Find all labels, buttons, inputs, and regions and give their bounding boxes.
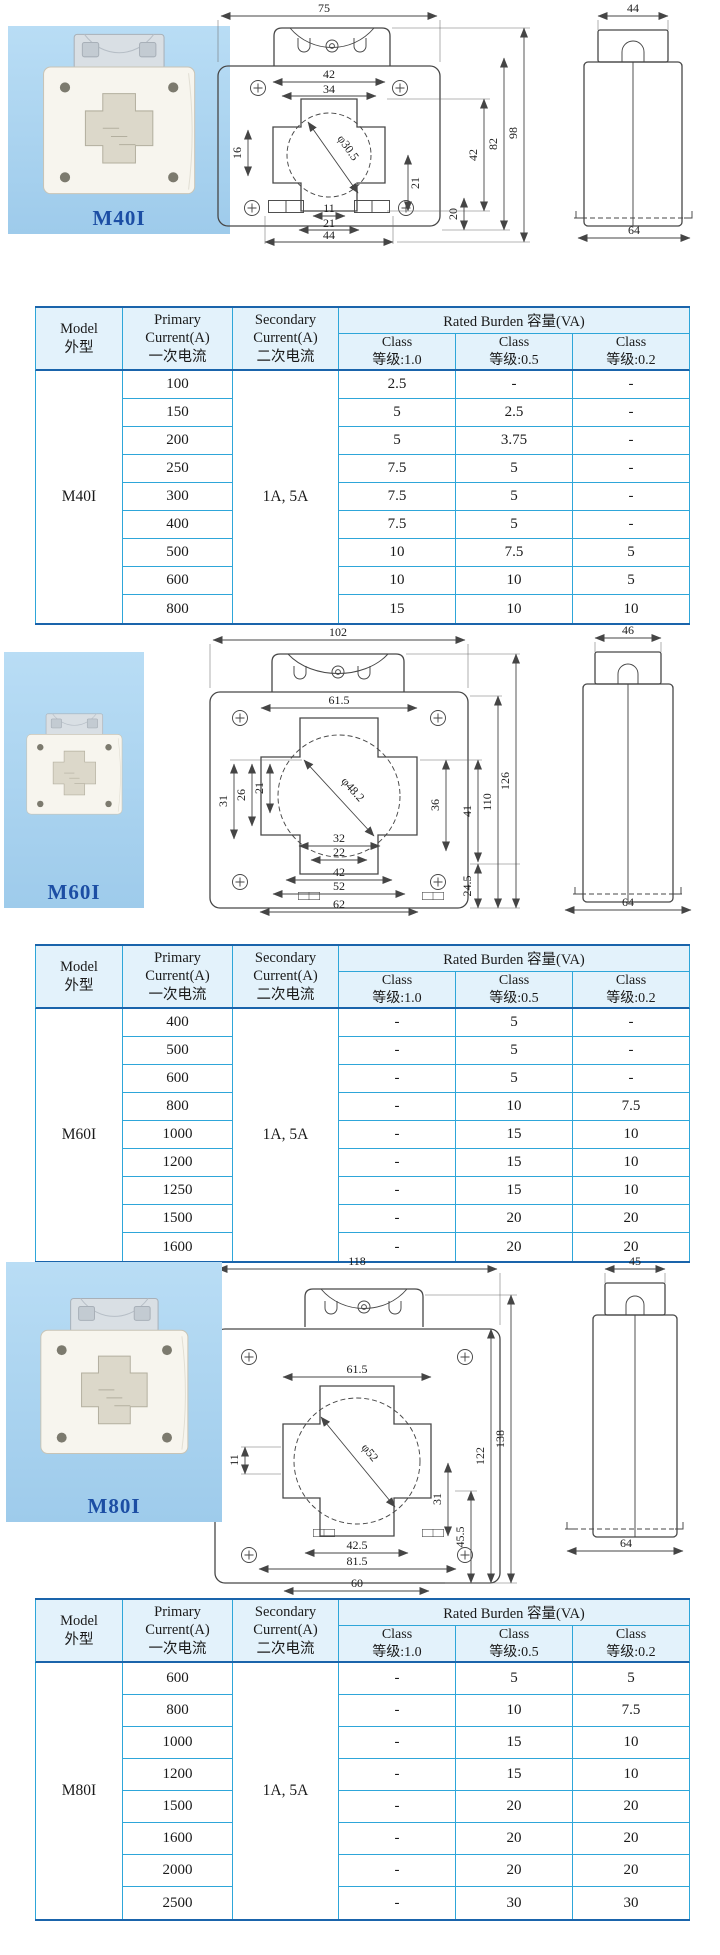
class02-cell: 20 <box>573 1823 689 1855</box>
primary-current-cell: 1250 <box>123 1177 232 1205</box>
dim-mid-a: 32 <box>333 831 345 845</box>
dim-right-a: 45.5 <box>453 1527 467 1548</box>
class05-cell: 5 <box>456 455 572 483</box>
primary-current-cell: 800 <box>123 1695 232 1727</box>
class10-cell: - <box>339 1121 455 1149</box>
class-label: Class <box>382 972 412 990</box>
header-primary-l3: 一次电流 <box>149 986 207 1004</box>
class05-cell: 5 <box>456 511 572 539</box>
class10-cell: - <box>339 1759 455 1791</box>
col-header-class05: Class 等级:0.5 <box>455 334 572 369</box>
class02-cell: 5 <box>573 1663 689 1695</box>
class-label: Class <box>616 334 646 352</box>
class-10-label: 等级:1.0 <box>372 990 421 1008</box>
burden-title: Rated Burden 容量(VA) <box>339 308 689 334</box>
header-primary-l2: Current(A) <box>145 329 209 347</box>
header-primary-l1: Primary <box>154 311 201 329</box>
class10-cell: - <box>339 1093 455 1121</box>
class02-cell: - <box>573 455 689 483</box>
class05-cell: 5 <box>456 483 572 511</box>
dim-window-outer: 61.5 <box>347 1362 368 1376</box>
header-secondary-l1: Secondary <box>255 949 316 967</box>
m60i-front-dimensions: 102 61.5 21 26 31 φ48.2 32 22 42 52 62 3… <box>210 625 520 912</box>
class02-cell: 20 <box>573 1205 689 1233</box>
class-label: Class <box>382 1626 412 1644</box>
header-model-en: Model <box>60 1612 98 1630</box>
primary-current-cell: 200 <box>123 427 232 455</box>
col-header-secondary: Secondary Current(A) 二次电流 <box>232 308 338 369</box>
dim-mid-b: 22 <box>333 845 345 859</box>
dim-side-bottom: 64 <box>622 895 634 909</box>
dim-window-outer: 42 <box>323 67 335 81</box>
class02-cell: 10 <box>573 1149 689 1177</box>
m80i-front-dimensions: 118 61.5 φ52 11 31 42.5 81.5 60 45.5 122… <box>215 1254 517 1591</box>
dim-bore-diameter: φ30.5 <box>335 132 362 163</box>
class-02-label: 等级:0.2 <box>606 352 655 370</box>
dim-left-a: 31 <box>216 795 230 807</box>
dim-window-outer: 61.5 <box>329 693 350 707</box>
class10-column: --------- <box>338 1009 455 1261</box>
class05-cell: 15 <box>456 1759 572 1791</box>
m40i-product-photo <box>17 26 221 202</box>
table-body: M60I 40050060080010001200125015001600 1A… <box>35 1009 690 1261</box>
dim-side-bottom: 64 <box>628 223 640 237</box>
m80i-photo-card: M80I <box>6 1262 222 1522</box>
m80i-side-drawing: 45 64 <box>553 1251 698 1563</box>
table-header: Model 外型 Primary Current(A) 一次电流 Seconda… <box>35 308 690 371</box>
class10-cell: - <box>339 1177 455 1205</box>
class02-cell: 10 <box>573 1121 689 1149</box>
primary-current-cell: 1600 <box>123 1823 232 1855</box>
primary-current-cell: 2000 <box>123 1855 232 1887</box>
primary-current-cell: 250 <box>123 455 232 483</box>
dim-right-in: 31 <box>430 1493 444 1505</box>
class10-cell: - <box>339 1791 455 1823</box>
class05-cell: 20 <box>456 1791 572 1823</box>
class-label: Class <box>382 334 412 352</box>
class05-cell: 15 <box>456 1177 572 1205</box>
header-primary-l1: Primary <box>154 1603 201 1621</box>
col-header-class05: Class 等级:0.5 <box>455 1626 572 1661</box>
col-header-burden: Rated Burden 容量(VA) Class 等级:1.0 Class 等… <box>338 1600 689 1661</box>
class10-cell: - <box>339 1855 455 1887</box>
header-model-cn: 外型 <box>65 339 94 357</box>
class-label: Class <box>499 972 529 990</box>
dim-base-gap: 20 <box>446 208 460 220</box>
header-secondary-l3: 二次电流 <box>257 1640 315 1658</box>
m60i-product-photo <box>10 652 139 876</box>
col-header-class10: Class 等级:1.0 <box>339 334 455 369</box>
burden-title: Rated Burden 容量(VA) <box>339 946 689 972</box>
col-header-class10: Class 等级:1.0 <box>339 1626 455 1661</box>
class02-cell: - <box>573 427 689 455</box>
class05-cell: 10 <box>456 1093 572 1121</box>
header-secondary-l1: Secondary <box>255 1603 316 1621</box>
m60i-spec-table: Model 外型 Primary Current(A) 一次电流 Seconda… <box>35 944 690 1263</box>
dim-height-body: 82 <box>486 138 500 150</box>
dim-side-bottom: 64 <box>620 1536 632 1550</box>
class10-cell: 7.5 <box>339 483 455 511</box>
class02-cell: 7.5 <box>573 1093 689 1121</box>
dim-bot-c: 62 <box>333 897 345 911</box>
col-header-class10: Class 等级:1.0 <box>339 972 455 1007</box>
m80i-product-photo <box>15 1262 214 1490</box>
dim-bot-c: 60 <box>351 1576 363 1590</box>
class10-cell: - <box>339 1037 455 1065</box>
primary-current-cell: 400 <box>123 1009 232 1037</box>
m60i-photo-card: M60I <box>4 652 144 908</box>
primary-current-cell: 1500 <box>123 1205 232 1233</box>
class-10-label: 等级:1.0 <box>372 1644 421 1662</box>
m40i-photo-card: M40I <box>8 26 230 234</box>
class10-cell: - <box>339 1009 455 1037</box>
col-header-class02: Class 等级:0.2 <box>572 972 689 1007</box>
class10-cell: - <box>339 1823 455 1855</box>
header-model-en: Model <box>60 320 98 338</box>
m80i-photo-label: M80I <box>88 1490 141 1522</box>
dim-bot-b: 81.5 <box>347 1554 368 1568</box>
class05-cell: 30 <box>456 1887 572 1919</box>
col-header-primary: Primary Current(A) 一次电流 <box>122 1600 232 1661</box>
dim-left-b: 26 <box>234 789 248 801</box>
dim-right-inner: 21 <box>408 177 422 189</box>
col-header-class02: Class 等级:0.2 <box>572 1626 689 1661</box>
primary-current-column: 100150200250300400500600800 <box>122 371 232 623</box>
dim-window-inner: 34 <box>323 82 335 96</box>
class05-cell: 10 <box>456 1695 572 1727</box>
model-cell: M40I <box>36 371 122 623</box>
class05-column: -2.53.755557.51010 <box>455 371 572 623</box>
table-header: Model 外型 Primary Current(A) 一次电流 Seconda… <box>35 946 690 1009</box>
col-header-burden: Rated Burden 容量(VA) Class 等级:1.0 Class 等… <box>338 308 689 369</box>
class10-cell: - <box>339 1149 455 1177</box>
col-header-class02: Class 等级:0.2 <box>572 334 689 369</box>
burden-title: Rated Burden 容量(VA) <box>339 1600 689 1626</box>
m60i-photo-label: M60I <box>48 876 101 908</box>
header-primary-l3: 一次电流 <box>149 348 207 366</box>
header-model-en: Model <box>60 958 98 976</box>
m60i-front-drawing: 102 61.5 21 26 31 φ48.2 32 22 42 52 62 3… <box>200 624 530 916</box>
class02-cell: 20 <box>573 1791 689 1823</box>
dim-bore-diameter: φ52 <box>359 1441 382 1465</box>
dim-left-step: 16 <box>230 147 244 159</box>
class02-cell: 10 <box>573 595 689 623</box>
m40i-side-drawing: 44 64 <box>572 0 697 246</box>
primary-current-cell: 1000 <box>123 1727 232 1759</box>
class10-cell: - <box>339 1887 455 1919</box>
primary-current-cell: 600 <box>123 1065 232 1093</box>
header-secondary-l2: Current(A) <box>253 1621 317 1639</box>
header-primary-l2: Current(A) <box>145 967 209 985</box>
primary-current-cell: 2500 <box>123 1887 232 1919</box>
class02-cell: - <box>573 1065 689 1093</box>
m40i-side-outline <box>574 30 694 226</box>
dim-side-top: 44 <box>627 1 639 15</box>
primary-current-cell: 1200 <box>123 1759 232 1791</box>
class02-column: 57.5101020202030 <box>572 1663 689 1919</box>
class10-cell: - <box>339 1663 455 1695</box>
class02-cell: 5 <box>573 567 689 595</box>
class05-cell: 15 <box>456 1727 572 1759</box>
secondary-current-cell: 1A, 5A <box>232 1663 338 1919</box>
class-05-label: 等级:0.5 <box>489 990 538 1008</box>
col-header-model: Model 外型 <box>36 946 122 1007</box>
primary-current-cell: 500 <box>123 539 232 567</box>
primary-current-cell: 400 <box>123 511 232 539</box>
stepped-window-outline <box>273 99 385 211</box>
class-02-label: 等级:0.2 <box>606 1644 655 1662</box>
class02-cell: - <box>573 483 689 511</box>
class02-cell: 20 <box>573 1855 689 1887</box>
class-02-label: 等级:0.2 <box>606 990 655 1008</box>
class02-cell: 30 <box>573 1887 689 1919</box>
class-05-label: 等级:0.5 <box>489 352 538 370</box>
primary-current-cell: 1200 <box>123 1149 232 1177</box>
class-label: Class <box>616 972 646 990</box>
dim-overall-width: 102 <box>329 625 347 639</box>
dim-bot-a: 42.5 <box>347 1538 368 1552</box>
class05-cell: 10 <box>456 567 572 595</box>
primary-current-cell: 1000 <box>123 1121 232 1149</box>
dim-right-c: 138 <box>493 1430 507 1448</box>
datasheet-page: M40I 75 42 34 <box>0 0 720 1955</box>
class10-column: 2.5557.57.57.5101015 <box>338 371 455 623</box>
class-label: Class <box>499 1626 529 1644</box>
primary-current-cell: 800 <box>123 1093 232 1121</box>
class05-cell: 15 <box>456 1149 572 1177</box>
class05-cell: 7.5 <box>456 539 572 567</box>
dim-mount-span: 44 <box>323 228 335 242</box>
class-label: Class <box>616 1626 646 1644</box>
table-header: Model 外型 Primary Current(A) 一次电流 Seconda… <box>35 1600 690 1663</box>
class02-cell: 5 <box>573 539 689 567</box>
header-primary-l2: Current(A) <box>145 1621 209 1639</box>
header-secondary-l3: 二次电流 <box>257 986 315 1004</box>
col-header-secondary: Secondary Current(A) 二次电流 <box>232 946 338 1007</box>
class02-cell: - <box>573 1037 689 1065</box>
dim-right-a: 41 <box>460 805 474 817</box>
m40i-side-dimensions: 44 64 <box>578 1 690 238</box>
m80i-front-drawing: 118 61.5 φ52 11 31 42.5 81.5 60 45.5 122… <box>205 1251 540 1598</box>
class05-column: 510151520202030 <box>455 1663 572 1919</box>
secondary-current-cell: 1A, 5A <box>232 371 338 623</box>
class02-cell: - <box>573 399 689 427</box>
class05-cell: 20 <box>456 1855 572 1887</box>
class02-cell: 10 <box>573 1727 689 1759</box>
class02-cell: 10 <box>573 1759 689 1791</box>
col-header-secondary: Secondary Current(A) 二次电流 <box>232 1600 338 1661</box>
dim-right-b: 122 <box>473 1447 487 1465</box>
table-body: M80I 600800100012001500160020002500 1A, … <box>35 1663 690 1919</box>
header-model-cn: 外型 <box>65 977 94 995</box>
header-secondary-l2: Current(A) <box>253 329 317 347</box>
m40i-photo-label: M40I <box>93 202 146 234</box>
dim-notch: 11 <box>323 201 335 215</box>
class05-cell: 20 <box>456 1205 572 1233</box>
col-header-model: Model 外型 <box>36 308 122 369</box>
primary-current-cell: 100 <box>123 371 232 399</box>
class05-cell: 5 <box>456 1037 572 1065</box>
primary-current-cell: 600 <box>123 567 232 595</box>
primary-current-cell: 150 <box>123 399 232 427</box>
class10-cell: 7.5 <box>339 511 455 539</box>
header-secondary-l2: Current(A) <box>253 967 317 985</box>
class02-cell: - <box>573 511 689 539</box>
dim-bot-b: 52 <box>333 879 345 893</box>
m60i-side-drawing: 46 64 <box>535 624 700 916</box>
class10-cell: - <box>339 1065 455 1093</box>
dim-bot-a: 42 <box>333 865 345 879</box>
class02-column: ------5510 <box>572 371 689 623</box>
class10-cell: 5 <box>339 427 455 455</box>
m40i-front-outline <box>218 28 440 226</box>
class10-column: -------- <box>338 1663 455 1919</box>
header-secondary-l3: 二次电流 <box>257 348 315 366</box>
col-header-burden: Rated Burden 容量(VA) Class 等级:1.0 Class 等… <box>338 946 689 1007</box>
class-10-label: 等级:1.0 <box>372 352 421 370</box>
dim-left-a: 11 <box>227 1454 241 1466</box>
class10-cell: 10 <box>339 567 455 595</box>
class05-cell: 3.75 <box>456 427 572 455</box>
class02-cell: - <box>573 1009 689 1037</box>
dim-left-c: 21 <box>252 782 266 794</box>
primary-current-cell: 800 <box>123 595 232 623</box>
dim-overall-width: 75 <box>318 1 330 15</box>
primary-current-cell: 500 <box>123 1037 232 1065</box>
class10-cell: - <box>339 1727 455 1759</box>
class02-cell: - <box>573 371 689 399</box>
class02-cell: 10 <box>573 1177 689 1205</box>
class10-cell: - <box>339 1205 455 1233</box>
dim-bore-diameter: φ48.2 <box>338 774 367 804</box>
model-cell: M80I <box>36 1663 122 1919</box>
table-body: M40I 100150200250300400500600800 1A, 5A … <box>35 371 690 623</box>
class05-column: 555101515152020 <box>455 1009 572 1261</box>
class02-cell: 7.5 <box>573 1695 689 1727</box>
class10-cell: 10 <box>339 539 455 567</box>
class-05-label: 等级:0.5 <box>489 1644 538 1662</box>
dim-right-c: 110 <box>480 793 494 811</box>
header-primary-l1: Primary <box>154 949 201 967</box>
primary-current-column: 40050060080010001200125015001600 <box>122 1009 232 1261</box>
m40i-front-drawing: 75 42 34 16 21 φ30.5 11 21 44 20 42 <box>212 0 597 246</box>
m60i-side-outline <box>573 652 683 902</box>
class10-cell: 15 <box>339 595 455 623</box>
header-secondary-l1: Secondary <box>255 311 316 329</box>
primary-current-column: 600800100012001500160020002500 <box>122 1663 232 1919</box>
class05-cell: 2.5 <box>456 399 572 427</box>
class-label: Class <box>499 334 529 352</box>
col-header-class05: Class 等级:0.5 <box>455 972 572 1007</box>
class02-column: ---7.51010102020 <box>572 1009 689 1261</box>
header-primary-l3: 一次电流 <box>149 1640 207 1658</box>
m40i-front-dimensions: 75 42 34 16 21 φ30.5 11 21 44 20 42 <box>218 1 530 244</box>
class05-cell: 20 <box>456 1823 572 1855</box>
col-header-primary: Primary Current(A) 一次电流 <box>122 946 232 1007</box>
m80i-side-outline <box>565 1283 685 1537</box>
dim-side-top: 45 <box>629 1254 641 1268</box>
class10-cell: 2.5 <box>339 371 455 399</box>
header-model-cn: 外型 <box>65 1631 94 1649</box>
primary-current-cell: 600 <box>123 1663 232 1695</box>
dim-side-top: 46 <box>622 624 634 637</box>
m80i-spec-table: Model 外型 Primary Current(A) 一次电流 Seconda… <box>35 1598 690 1921</box>
class10-cell: - <box>339 1695 455 1727</box>
class05-cell: - <box>456 371 572 399</box>
dim-overall-width: 118 <box>348 1254 366 1268</box>
class05-cell: 15 <box>456 1121 572 1149</box>
class05-cell: 5 <box>456 1065 572 1093</box>
primary-current-cell: 300 <box>123 483 232 511</box>
dim-right-d: 126 <box>498 772 512 790</box>
secondary-current-cell: 1A, 5A <box>232 1009 338 1261</box>
class05-cell: 10 <box>456 595 572 623</box>
dim-height-total: 98 <box>506 127 520 139</box>
primary-current-cell: 1500 <box>123 1791 232 1823</box>
col-header-primary: Primary Current(A) 一次电流 <box>122 308 232 369</box>
m40i-spec-table: Model 外型 Primary Current(A) 一次电流 Seconda… <box>35 306 690 625</box>
dim-height-window: 42 <box>466 149 480 161</box>
model-cell: M60I <box>36 1009 122 1261</box>
class10-cell: 7.5 <box>339 455 455 483</box>
class05-cell: 5 <box>456 1663 572 1695</box>
class10-cell: 5 <box>339 399 455 427</box>
dim-right-in: 36 <box>428 799 442 811</box>
dim-right-b: 24.5 <box>460 876 474 897</box>
col-header-model: Model 外型 <box>36 1600 122 1661</box>
class05-cell: 5 <box>456 1009 572 1037</box>
